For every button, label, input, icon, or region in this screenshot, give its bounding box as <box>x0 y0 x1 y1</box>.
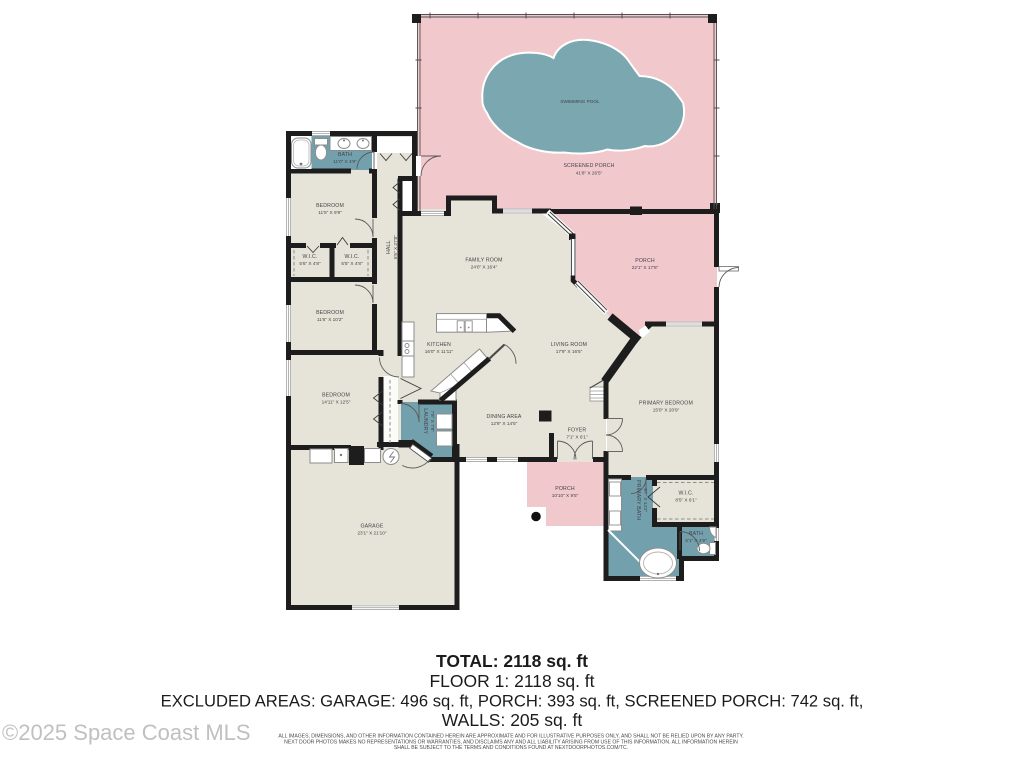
svg-text:5'5" X 27'8": 5'5" X 27'8" <box>393 235 398 259</box>
svg-text:11'0" X 4'9": 11'0" X 4'9" <box>333 159 357 164</box>
svg-text:23'1" X 21'10": 23'1" X 21'10" <box>357 531 386 536</box>
svg-text:LIVING ROOM: LIVING ROOM <box>551 342 587 348</box>
svg-text:©2025 Space Coast MLS: ©2025 Space Coast MLS <box>2 720 251 745</box>
svg-text:5'5" X 4'8": 5'5" X 4'8" <box>341 261 363 266</box>
svg-text:5'6" X 4'8": 5'6" X 4'8" <box>299 261 321 266</box>
svg-text:11'5" X 9'9": 11'5" X 9'9" <box>318 210 342 215</box>
svg-text:FAMILY ROOM: FAMILY ROOM <box>465 258 502 264</box>
svg-text:EXCLUDED AREAS: GARAGE: 496 sq: EXCLUDED AREAS: GARAGE: 496 sq. ft, PORC… <box>161 692 864 711</box>
svg-text:PORCH: PORCH <box>555 486 575 492</box>
svg-text:9'7" X 14'2": 9'7" X 14'2" <box>643 488 648 512</box>
svg-text:SHALL BE SUBJECT TO THE TERMS: SHALL BE SUBJECT TO THE TERMS AND CONDIT… <box>394 745 628 751</box>
svg-text:WALLS: 205 sq. ft: WALLS: 205 sq. ft <box>442 710 583 730</box>
svg-text:16'0" X 11'11": 16'0" X 11'11" <box>425 349 454 354</box>
svg-text:BEDROOM: BEDROOM <box>316 310 344 316</box>
svg-text:W.I.C.: W.I.C. <box>302 254 317 260</box>
svg-text:FLOOR 1: 2118 sq. ft: FLOOR 1: 2118 sq. ft <box>429 671 594 691</box>
svg-text:15'0" X 20'9": 15'0" X 20'9" <box>653 408 680 413</box>
svg-text:HALL: HALL <box>386 240 392 254</box>
svg-text:5'1" X 4'9": 5'1" X 4'9" <box>685 538 707 543</box>
svg-text:TOTAL: 2118 sq. ft: TOTAL: 2118 sq. ft <box>436 651 588 671</box>
svg-text:12'9" X 14'5": 12'9" X 14'5" <box>491 421 518 426</box>
svg-text:KITCHEN: KITCHEN <box>427 342 451 348</box>
svg-text:41'8" X 26'5": 41'8" X 26'5" <box>576 171 603 176</box>
svg-text:10'10" X 9'5": 10'10" X 9'5" <box>552 493 579 498</box>
svg-text:PORCH: PORCH <box>635 258 655 264</box>
svg-text:BEDROOM: BEDROOM <box>322 393 350 399</box>
svg-text:W.I.C.: W.I.C. <box>344 254 359 260</box>
svg-text:PRIMARY BATH: PRIMARY BATH <box>635 480 641 520</box>
svg-text:7'1" X 6'1": 7'1" X 6'1" <box>566 435 588 440</box>
svg-text:7'8" X 7'8": 7'8" X 7'8" <box>430 411 435 433</box>
svg-text:22'1" X 17'8": 22'1" X 17'8" <box>632 265 659 270</box>
svg-text:W.I.C.: W.I.C. <box>678 491 693 497</box>
svg-text:GARAGE: GARAGE <box>360 524 383 530</box>
svg-text:11'6" X 10'2": 11'6" X 10'2" <box>317 317 343 322</box>
svg-text:17'9" X 16'5": 17'9" X 16'5" <box>556 349 583 354</box>
svg-text:SCREENED PORCH: SCREENED PORCH <box>563 163 614 169</box>
svg-text:SWIMMING POOL: SWIMMING POOL <box>560 99 600 104</box>
svg-text:PRIMARY BEDROOM: PRIMARY BEDROOM <box>639 401 693 407</box>
svg-text:BATH: BATH <box>689 531 703 537</box>
svg-text:BEDROOM: BEDROOM <box>316 203 344 209</box>
svg-text:LAUNDRY: LAUNDRY <box>422 408 428 434</box>
svg-text:24'0" X 16'4": 24'0" X 16'4" <box>471 265 498 270</box>
svg-text:FOYER: FOYER <box>568 428 587 434</box>
svg-text:DINING AREA: DINING AREA <box>486 414 521 420</box>
svg-text:BATH: BATH <box>338 152 352 158</box>
svg-text:14'11" X 12'5": 14'11" X 12'5" <box>322 400 351 405</box>
svg-text:8'5" X 6'1": 8'5" X 6'1" <box>675 498 697 503</box>
